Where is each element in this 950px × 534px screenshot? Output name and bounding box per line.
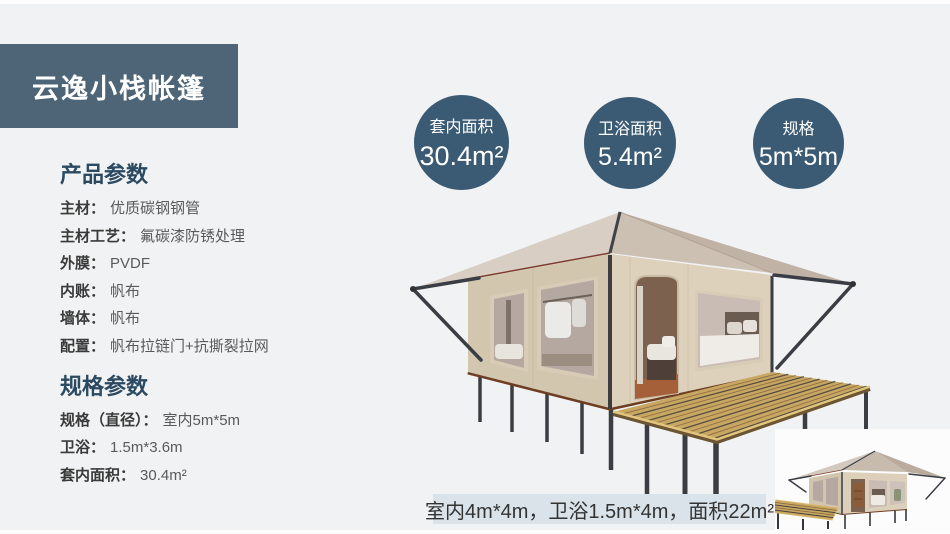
brace-tip-right xyxy=(850,281,856,287)
spec-row: 套内面积：30.4m² xyxy=(60,468,380,484)
spec-row: 卫浴：1.5m*3.6m xyxy=(60,440,380,456)
spec-row: 配置：帆布拉链门+抗撕裂拉网 xyxy=(60,339,380,355)
spec-row-value: 帆布拉链门+抗撕裂拉网 xyxy=(110,338,269,355)
spec-row-label: 主材工艺： xyxy=(60,228,135,245)
badge-size: 规格 5m*5m xyxy=(753,98,844,189)
top-divider xyxy=(0,0,950,4)
spec-row-label: 配置： xyxy=(60,338,105,355)
spec-row-value: PVDF xyxy=(110,255,150,272)
tent-front-window xyxy=(695,290,763,372)
variant-front-wall xyxy=(842,472,907,514)
variant-caption: 室内4m*4m，卫浴1.5m*4m，面积22m² xyxy=(433,494,766,524)
badge-bathroom-area: 卫浴面积 5.4m² xyxy=(584,97,676,189)
badge-value: 30.4m² xyxy=(419,141,503,172)
spec-row-label: 外膜： xyxy=(60,255,105,272)
spec-row-value: 30.4m² xyxy=(140,467,187,484)
variant-tent-image xyxy=(775,429,950,534)
spec-row: 墙体：帆布 xyxy=(60,311,380,327)
spec-row-label: 主材： xyxy=(60,200,105,217)
tent-door xyxy=(635,276,678,399)
spec-row-label: 内账： xyxy=(60,283,105,300)
size-params-heading: 规格参数 xyxy=(60,375,380,399)
spec-row-value: 氟碳漆防锈处理 xyxy=(140,228,245,245)
spec-row-label: 卫浴： xyxy=(60,439,105,456)
spec-row: 外膜：PVDF xyxy=(60,256,380,272)
spec-row: 规格（直径）：室内5m*5m xyxy=(60,413,380,429)
spec-row-value: 帆布 xyxy=(110,283,140,300)
badge-value: 5m*5m xyxy=(759,143,838,172)
spec-row: 内账：帆布 xyxy=(60,284,380,300)
spec-row-label: 规格（直径）： xyxy=(60,412,158,429)
badge-interior-area: 套内面积 30.4m² xyxy=(414,95,509,190)
spec-row-label: 套内面积： xyxy=(60,467,135,484)
product-slide: 云逸小栈帐篷 产品参数 主材：优质碳钢钢管 主材工艺：氟碳漆防锈处理 外膜：PV… xyxy=(0,0,950,534)
tent-left-wall xyxy=(468,254,610,408)
badge-value: 5.4m² xyxy=(598,143,662,172)
spec-row-value: 1.5m*3.6m xyxy=(110,439,183,456)
spec-row: 主材工艺：氟碳漆防锈处理 xyxy=(60,229,380,245)
badge-label: 规格 xyxy=(782,115,814,139)
left-spec-panel: 产品参数 主材：优质碳钢钢管 主材工艺：氟碳漆防锈处理 外膜：PVDF 内账：帆… xyxy=(60,163,380,495)
bottom-divider xyxy=(0,530,950,534)
spec-row-value: 室内5m*5m xyxy=(163,412,241,429)
badge-label: 套内面积 xyxy=(429,113,493,137)
spec-row-label: 墙体： xyxy=(60,310,105,327)
spec-row-value: 优质碳钢钢管 xyxy=(110,200,200,217)
page-title: 云逸小栈帐篷 xyxy=(32,67,206,106)
title-banner: 云逸小栈帐篷 xyxy=(0,44,238,128)
brace-tip-left xyxy=(410,286,416,292)
product-params-heading: 产品参数 xyxy=(60,163,380,187)
spec-row-value: 帆布 xyxy=(110,310,140,327)
badge-label: 卫浴面积 xyxy=(598,115,662,139)
spec-row: 主材：优质碳钢钢管 xyxy=(60,201,380,217)
variant-thumbnail xyxy=(775,429,950,534)
